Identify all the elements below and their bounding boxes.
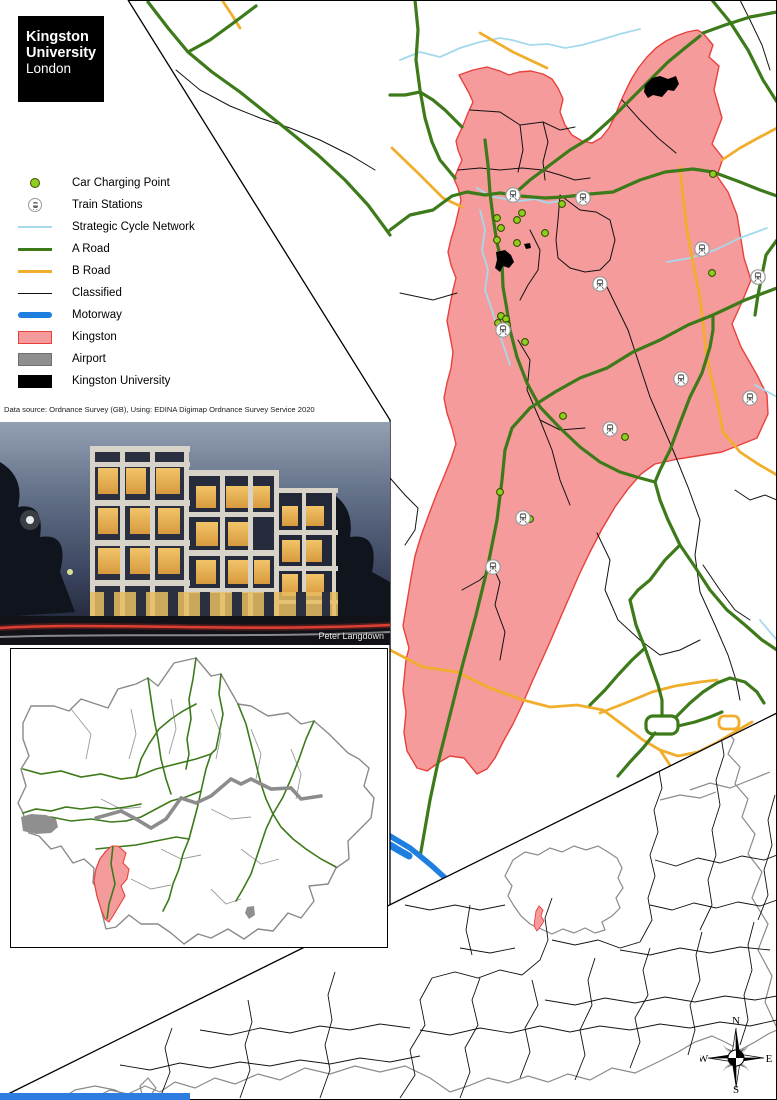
- legend-item: Car Charging Point: [16, 172, 346, 194]
- compass-east-label: E: [766, 1053, 772, 1065]
- legend-item-label: Car Charging Point: [72, 177, 170, 189]
- legend-item: Motorway: [16, 304, 346, 326]
- car-charging-point-marker: [519, 210, 526, 217]
- car-charging-point-marker: [560, 413, 567, 420]
- legend-item-label: Motorway: [72, 309, 122, 321]
- car-charging-point-marker: [709, 270, 716, 277]
- legend-item-label: B Road: [72, 265, 110, 277]
- london-inset-map: [10, 648, 388, 948]
- car-charging-point-marker: [522, 339, 529, 346]
- car-charging-point-marker: [498, 225, 505, 232]
- compass-west-label: W: [700, 1053, 709, 1065]
- legend-item-label: A Road: [72, 243, 110, 255]
- legend-item-label: Kingston University: [72, 375, 170, 387]
- photo-credit: Peter Langdown: [318, 631, 384, 641]
- train-station-marker: [674, 372, 688, 386]
- legend-item: Kingston University: [16, 370, 346, 392]
- train-station-marker: [486, 560, 500, 574]
- logo-line-3: London: [26, 61, 98, 76]
- car-charging-point-marker: [622, 434, 629, 441]
- map-layout-page: Peter Langdown: [0, 0, 777, 1100]
- legend-item-label: Classified: [72, 287, 122, 299]
- compass-south-label: S: [733, 1084, 739, 1094]
- car-charging-point-marker: [514, 240, 521, 247]
- train-station-marker: [576, 191, 590, 205]
- compass-north-label: N: [732, 1015, 740, 1027]
- university-area-swatch: [18, 375, 52, 388]
- classified-road-swatch: [18, 293, 52, 294]
- data-source-attribution: Data source: Ordnance Survey (GB), Using…: [4, 405, 388, 414]
- train-station-marker: [751, 270, 765, 284]
- logo-line-2: University: [26, 45, 98, 61]
- legend-item-label: Strategic Cycle Network: [72, 221, 195, 233]
- legend-item: A Road: [16, 238, 346, 260]
- car-charging-point-marker: [494, 215, 501, 222]
- logo-line-1: Kingston: [26, 29, 98, 45]
- car-charging-point-marker: [710, 171, 717, 178]
- photo-illustration: [0, 422, 390, 645]
- car-charging-point-marker: [497, 489, 504, 496]
- b-road-swatch: [18, 270, 52, 273]
- car-charging-point-marker: [514, 217, 521, 224]
- legend-item: B Road: [16, 260, 346, 282]
- legend-item-label: Airport: [72, 353, 106, 365]
- compass-star: [708, 1028, 764, 1088]
- legend-item-label: Train Stations: [72, 199, 143, 211]
- compass-rose: N S W E: [700, 1014, 772, 1094]
- train-station-marker: [593, 277, 607, 291]
- legend-item-label: Kingston: [72, 331, 117, 343]
- legend-item: Train Stations: [16, 194, 346, 216]
- motorway-swatch: [18, 312, 52, 318]
- car-charging-point-icon: [30, 178, 40, 188]
- airport-area-swatch: [18, 353, 52, 366]
- biggin-hill-airport-area: [245, 906, 255, 919]
- train-station-marker: [695, 242, 709, 256]
- kingston-university-logo: Kingston University London: [18, 16, 104, 102]
- map-legend: Car Charging PointTrain StationsStrategi…: [16, 172, 346, 392]
- train-station-marker: [516, 511, 530, 525]
- legend-item: Classified: [16, 282, 346, 304]
- train-station-marker: [506, 188, 520, 202]
- legend-item: Kingston: [16, 326, 346, 348]
- cycle-network-swatch: [18, 226, 52, 228]
- kingston-area-swatch: [18, 331, 52, 344]
- car-charging-point-marker: [542, 230, 549, 237]
- london-boundary: [18, 658, 374, 944]
- legend-item: Strategic Cycle Network: [16, 216, 346, 238]
- train-station-marker: [743, 391, 757, 405]
- train-station-marker: [603, 422, 617, 436]
- train-station-icon: [28, 198, 42, 212]
- car-charging-point-marker: [494, 237, 501, 244]
- a-road-swatch: [18, 248, 52, 251]
- legend-item: Airport: [16, 348, 346, 370]
- train-station-marker: [496, 323, 510, 337]
- scale-bar: [0, 1093, 190, 1100]
- car-charging-point-marker: [559, 201, 566, 208]
- university-building-photo: Peter Langdown: [0, 422, 390, 645]
- london-a-roads: [23, 658, 336, 911]
